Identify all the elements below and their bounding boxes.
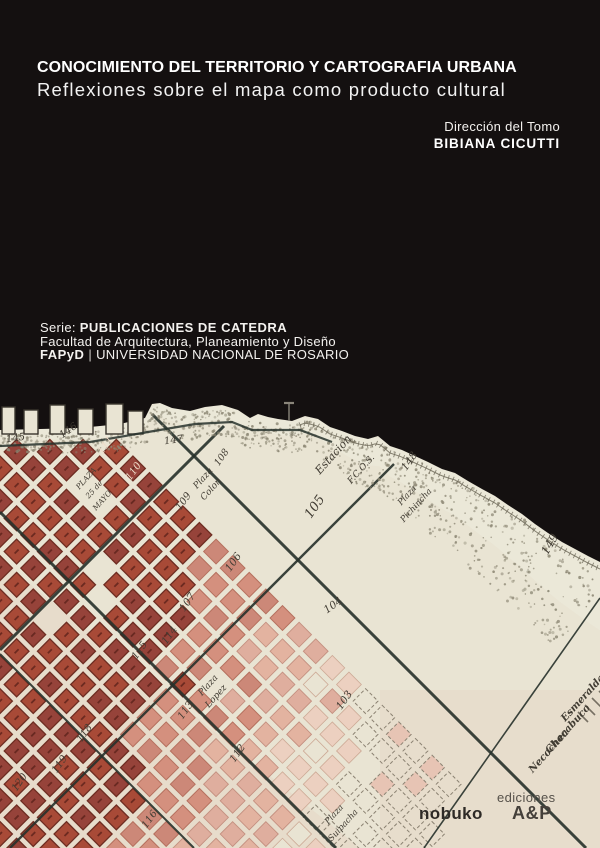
rosario-cadastral-map: 1451461471481491111101081091051061071041… <box>0 396 600 848</box>
series-line: Serie: PUBLICACIONES DE CATEDRA <box>40 321 349 335</box>
series-block: Serie: PUBLICACIONES DE CATEDRA Facultad… <box>40 321 349 362</box>
separator: | <box>84 347 96 362</box>
historic-city-map: 1451461471481491111101081091051061071041… <box>0 396 600 848</box>
book-subtitle: Reflexiones sobre el mapa como producto … <box>37 79 517 100</box>
university-line: FAPyD|UNIVERSIDAD NACIONAL DE ROSARIO <box>40 348 349 362</box>
faculty-line: Facultad de Arquitectura, Planeamiento y… <box>40 335 349 349</box>
direction-label: Dirección del Tomo <box>434 119 560 134</box>
title-block: CONOCIMIENTO DEL TERRITORIO Y CARTOGRAFI… <box>37 58 517 100</box>
university-name: UNIVERSIDAD NACIONAL DE ROSARIO <box>96 347 349 362</box>
series-name: PUBLICACIONES DE CATEDRA <box>80 320 288 335</box>
book-title: CONOCIMIENTO DEL TERRITORIO Y CARTOGRAFI… <box>37 58 517 77</box>
faculty-acronym: FAPyD <box>40 347 84 362</box>
direction-block: Dirección del Tomo BIBIANA CICUTTI <box>434 119 560 151</box>
book-cover: CONOCIMIENTO DEL TERRITORIO Y CARTOGRAFI… <box>0 0 600 848</box>
series-prefix: Serie: <box>40 320 76 335</box>
author-name: BIBIANA CICUTTI <box>434 136 560 151</box>
